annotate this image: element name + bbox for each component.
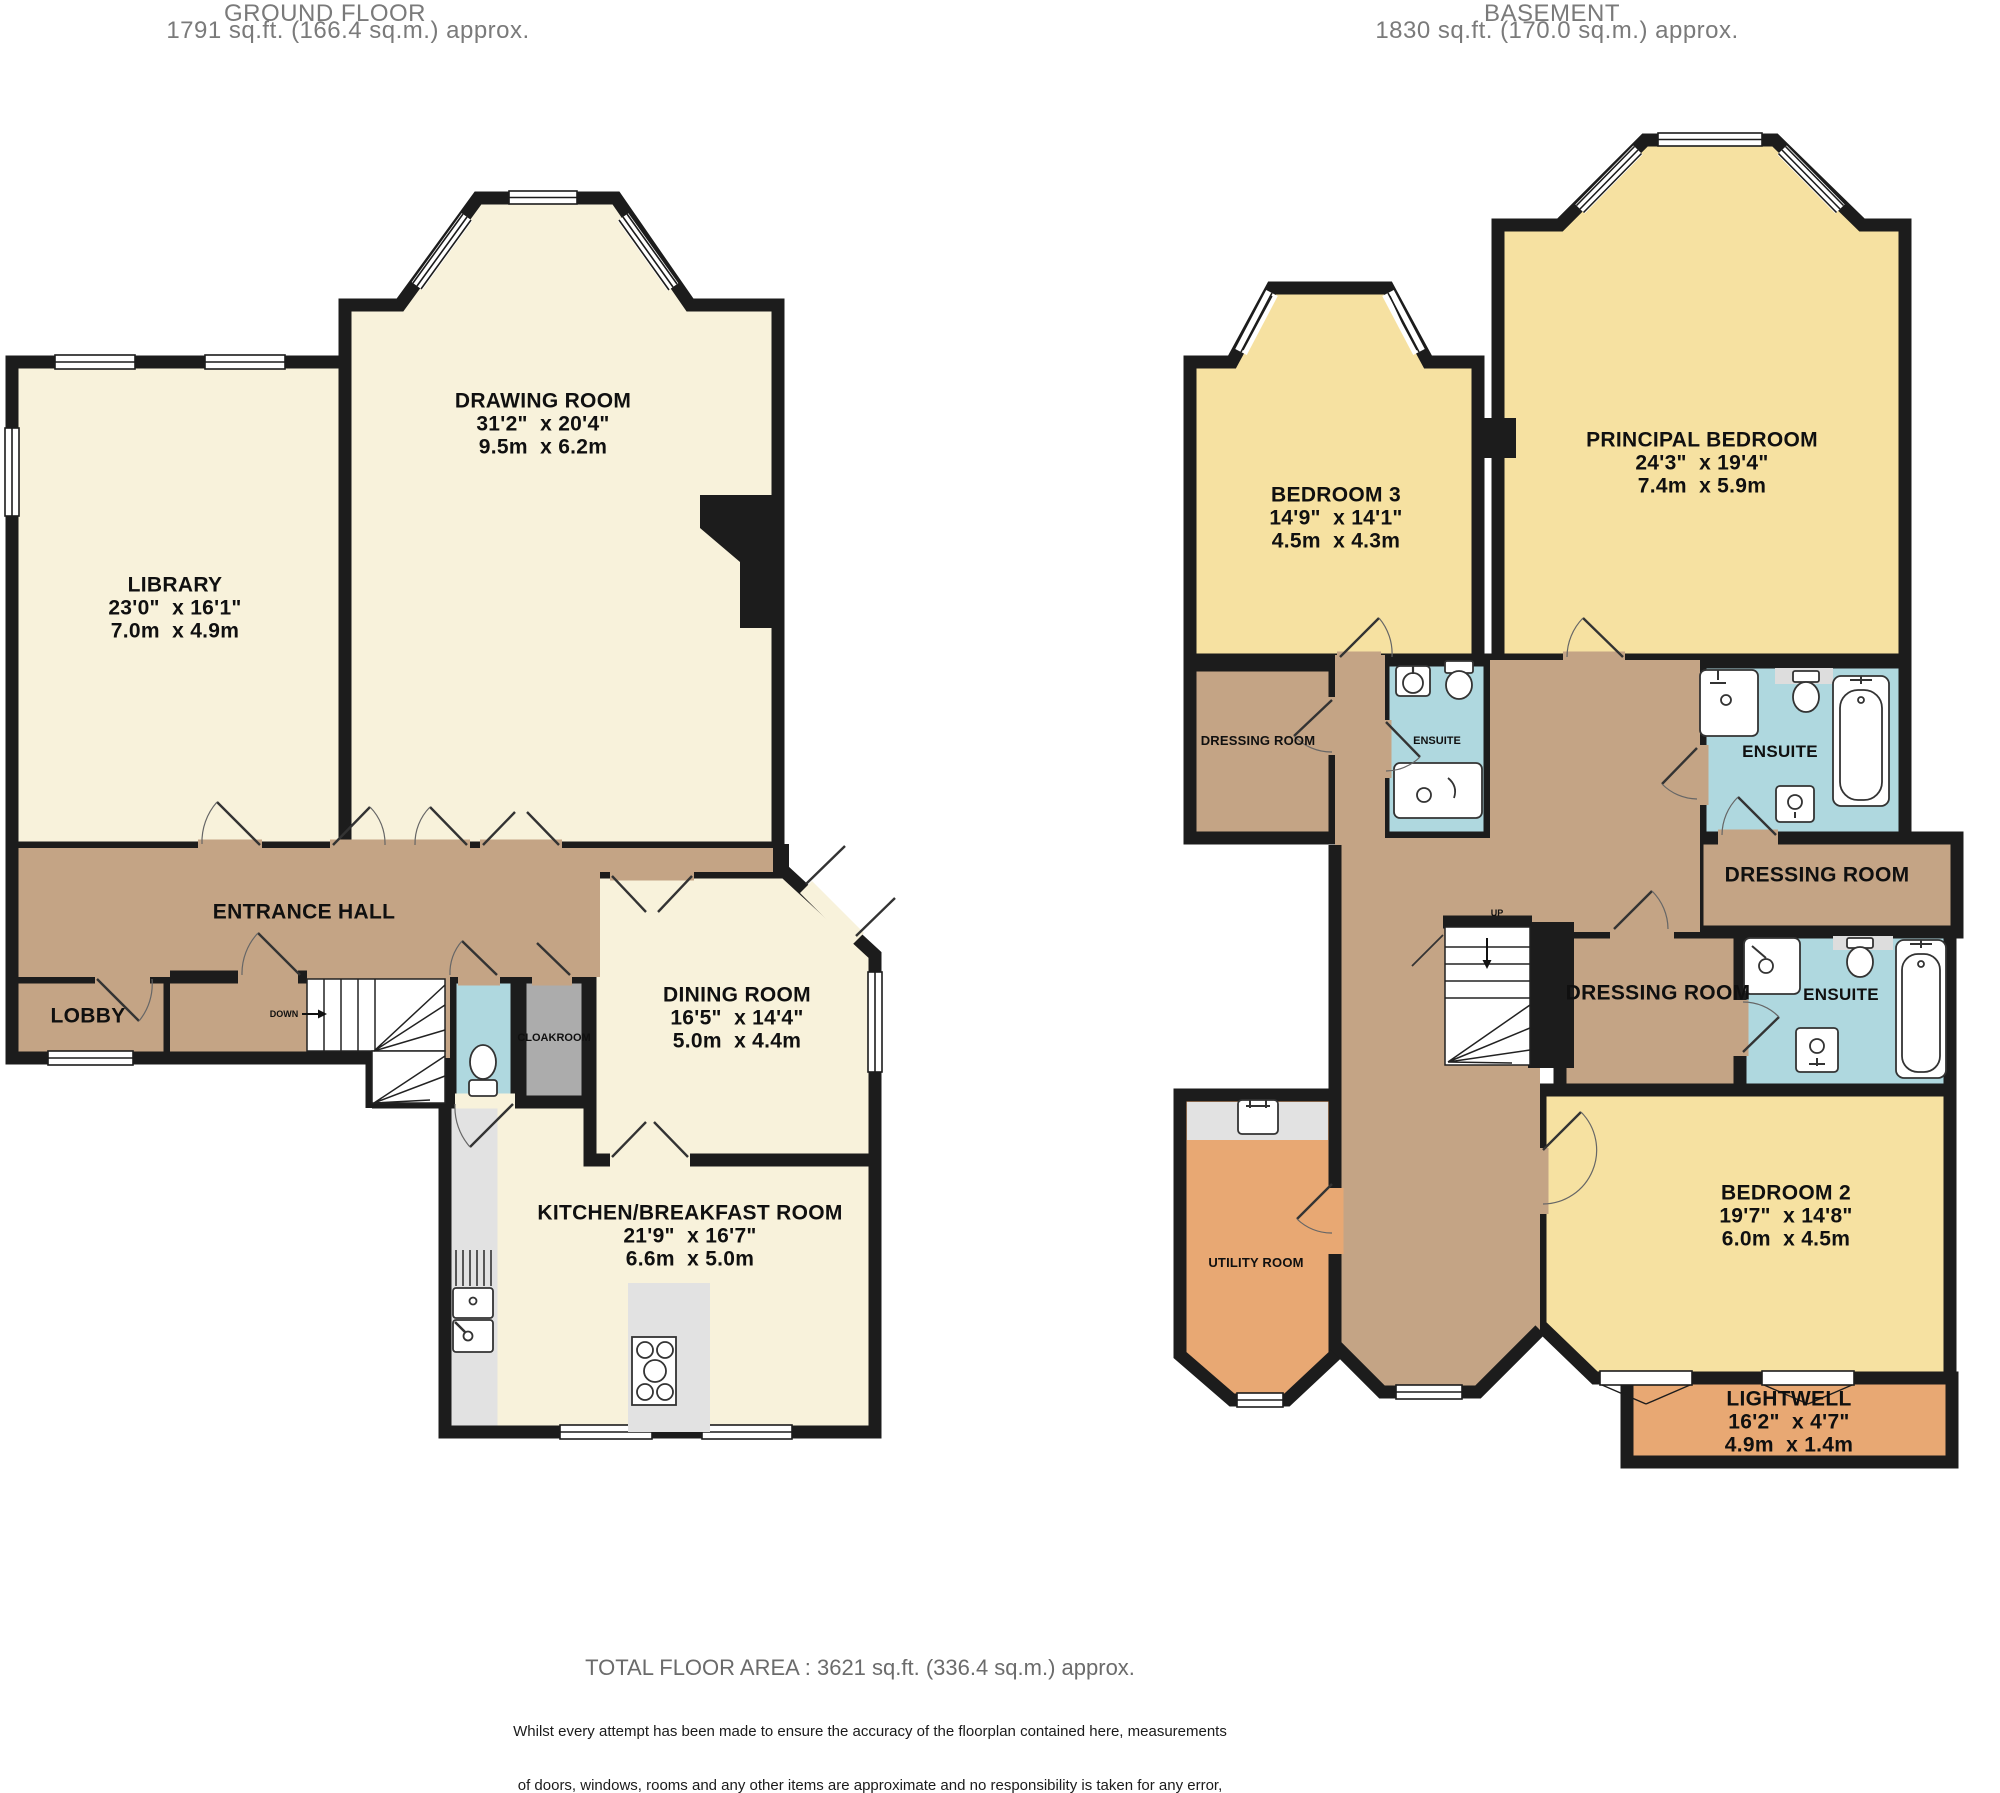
window — [1237, 1393, 1283, 1407]
window — [702, 1425, 792, 1439]
floorplan-canvas: GROUND FLOOR 1791 sq.ft. (166.4 sq.m.) a… — [0, 0, 2000, 1793]
wall-chunk — [773, 844, 789, 876]
room-dressing-middle — [1560, 932, 1740, 1090]
label-ensuite-lower: ENSUITE — [1803, 986, 1879, 1004]
label-principal-bedroom: PRINCIPAL BEDROOM24'3" x 19'4"7.4m x 5.9… — [1586, 383, 1818, 544]
label-cloakroom: CLOAKROOM — [517, 1032, 590, 1044]
window — [205, 355, 285, 369]
window — [55, 355, 135, 369]
window — [48, 1051, 133, 1065]
sink-icon — [1238, 1100, 1278, 1134]
kitchen-counter — [452, 1109, 498, 1426]
window — [5, 428, 19, 516]
window — [509, 191, 577, 204]
bath-icon — [1833, 676, 1889, 806]
total-floor-area: TOTAL FLOOR AREA : 3621 sq.ft. (336.4 sq… — [585, 1656, 1135, 1680]
label-library: LIBRARY23'0" x 16'1"7.0m x 4.9m — [108, 528, 241, 689]
disclaimer: Whilst every attempt has been made to en… — [509, 1687, 1231, 1793]
sink-icon — [1396, 666, 1430, 696]
window — [1658, 133, 1762, 146]
bath-icon — [1896, 940, 1946, 1078]
label-ensuite-small: ENSUITE — [1413, 735, 1461, 747]
basement-area: 1830 sq.ft. (170.0 sq.m.) approx. — [1375, 18, 1738, 44]
room-utility — [1180, 1095, 1335, 1400]
ground-floor-area: 1791 sq.ft. (166.4 sq.m.) approx. — [166, 18, 529, 44]
room-dressing-small — [1190, 665, 1335, 838]
label-dining-room: DINING ROOM16'5" x 14'4"5.0m x 4.4m — [663, 938, 811, 1099]
hob-icon — [632, 1337, 676, 1405]
shower-icon — [1700, 670, 1758, 736]
label-dressing-room-right: DRESSING ROOM — [1725, 864, 1910, 887]
label-down: DOWN — [270, 1009, 299, 1019]
floorplan-drawing — [0, 0, 2000, 1793]
sink-icon — [1796, 1028, 1838, 1072]
label-lobby: LOBBY — [51, 1005, 126, 1028]
label-lightwell: LIGHTWELL16'2" x 4'7"4.9m x 1.4m — [1725, 1342, 1854, 1503]
label-kitchen: KITCHEN/BREAKFAST ROOM21'9" x 16'7"6.6m … — [537, 1156, 842, 1317]
label-utility-room: UTILITY ROOM — [1208, 1256, 1303, 1270]
stairs-up — [1445, 927, 1530, 1065]
toilet-icon — [1793, 671, 1819, 712]
label-ensuite-principal: ENSUITE — [1742, 743, 1818, 761]
window — [1396, 1385, 1462, 1399]
toilet-icon — [1847, 938, 1873, 977]
toilet-icon — [1445, 661, 1473, 699]
label-bedroom3: BEDROOM 314'9" x 14'1"4.5m x 4.3m — [1269, 438, 1402, 599]
label-drawing-room: DRAWING ROOM31'2" x 20'4"9.5m x 6.2m — [455, 344, 631, 505]
wall-chunk — [1478, 418, 1516, 458]
shower-icon — [1394, 763, 1482, 818]
utility-fixtures — [1187, 1100, 1328, 1140]
stairs-down — [302, 979, 445, 1103]
shower-icon — [1744, 938, 1800, 994]
label-dressing-room-small: DRESSING ROOM — [1201, 734, 1316, 748]
toilet-icon — [469, 1045, 497, 1096]
label-up: UP — [1491, 908, 1504, 918]
sink-icon — [453, 1288, 493, 1352]
window — [868, 972, 882, 1072]
label-dressing-room-middle: DRESSING ROOM — [1566, 982, 1751, 1005]
sink-icon — [1776, 786, 1814, 822]
label-entrance-hall: ENTRANCE HALL — [213, 901, 395, 924]
label-bedroom2: BEDROOM 219'7" x 14'8"6.0m x 4.5m — [1719, 1136, 1852, 1297]
